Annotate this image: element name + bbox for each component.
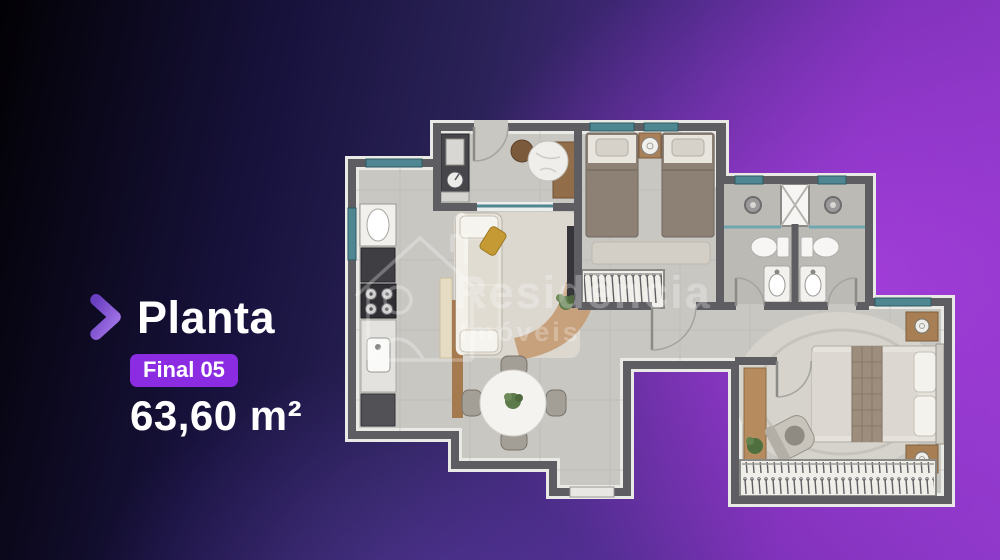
nightstand <box>906 312 938 341</box>
double-bed <box>812 344 944 444</box>
dining-chair <box>462 390 482 416</box>
nightstand-lamp <box>639 133 661 158</box>
laundry-sink <box>360 204 396 246</box>
toilet <box>801 237 839 257</box>
watermark-brand-sub: Imóveis <box>459 317 581 347</box>
info-panel: Planta Final 05 63,60 m² <box>88 291 302 439</box>
watermark-brand: Residência <box>454 267 712 318</box>
living-glass-door <box>570 487 614 497</box>
wardrobe-bedroom2 <box>740 460 936 496</box>
twin-bed <box>662 133 714 237</box>
side-cabinet <box>440 278 452 358</box>
page-title: Planta <box>137 295 275 340</box>
kitchen-side-window <box>348 208 356 260</box>
desk-sideboard <box>744 368 766 460</box>
round-marble-table <box>528 141 568 181</box>
chevron-right-icon <box>88 291 124 343</box>
floorplan-drawing: Residência Imóveis <box>0 0 1000 560</box>
bedroom2-window <box>875 298 931 306</box>
shower-duct <box>781 184 809 226</box>
sink-vanity <box>764 266 790 302</box>
bedroom1-window <box>644 123 678 131</box>
toilet <box>751 237 789 257</box>
bathroom-window <box>735 176 763 184</box>
real-estate-floorplan-card: Residência Imóveis Planta Final 05 63,60… <box>0 0 1000 560</box>
utility-closet-water-heater <box>441 134 469 202</box>
shower-head <box>745 197 761 213</box>
bathroom-window <box>818 176 846 184</box>
kitchen-window <box>366 159 422 167</box>
area-value: 63,60 m² <box>130 393 302 439</box>
shower-head <box>825 197 841 213</box>
bedroom1-rug <box>592 242 710 264</box>
dining-chair <box>546 390 566 416</box>
twin-bed <box>586 133 638 237</box>
sink-vanity <box>800 266 826 302</box>
kitchen-cabinet <box>361 394 395 426</box>
bedroom1-window <box>590 123 634 131</box>
unit-badge: Final 05 <box>130 354 238 387</box>
